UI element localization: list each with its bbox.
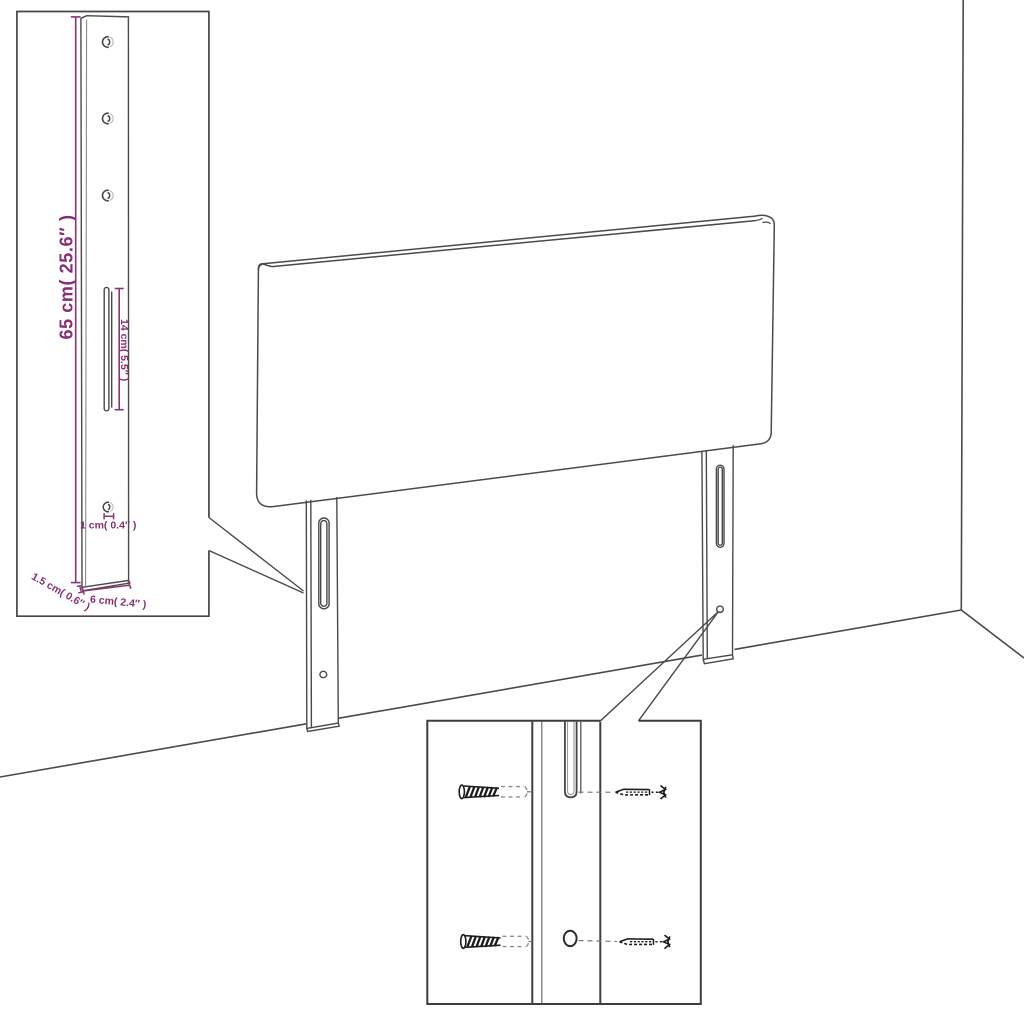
svg-text:14 cm( 5.5″ ): 14 cm( 5.5″ ) bbox=[118, 319, 130, 381]
svg-text:65 cm( 25.6″ ): 65 cm( 25.6″ ) bbox=[56, 214, 76, 339]
svg-text:1 cm( 0.4″ ): 1 cm( 0.4″ ) bbox=[80, 520, 136, 532]
